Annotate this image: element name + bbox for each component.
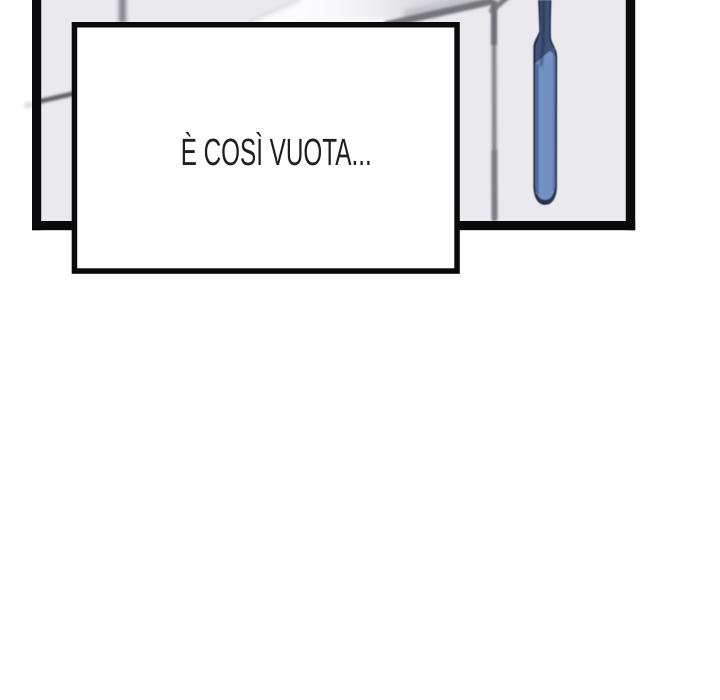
svg-text:È COSÌ VUOTA...: È COSÌ VUOTA... (181, 132, 372, 174)
